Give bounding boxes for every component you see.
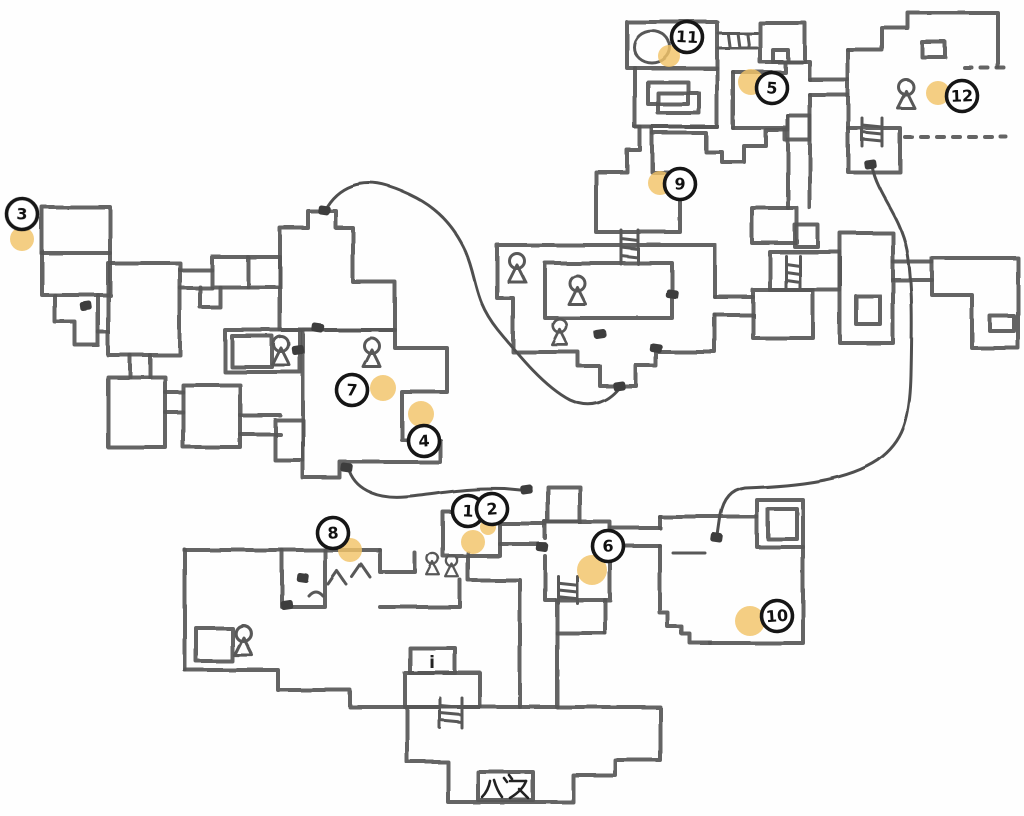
map-wall — [280, 211, 395, 330]
svg-text:2: 2 — [486, 499, 498, 519]
door-marker — [317, 205, 330, 216]
door-marker — [612, 381, 625, 392]
map-wall — [660, 546, 710, 643]
chevron-mark — [309, 592, 323, 596]
person-icon — [509, 254, 526, 283]
map-wall — [770, 252, 840, 290]
map-wall — [232, 336, 272, 367]
person-icon — [569, 276, 586, 305]
ladder-icon — [718, 33, 757, 48]
map-wall — [55, 295, 98, 345]
door-marker — [593, 329, 606, 340]
map-marker-4: 4 — [408, 425, 441, 458]
info-label: i — [429, 653, 435, 673]
svg-text:1: 1 — [462, 501, 474, 521]
door-marker — [311, 323, 324, 334]
door-marker — [296, 573, 309, 584]
svg-text:4: 4 — [418, 431, 430, 451]
map-wall — [990, 316, 1014, 331]
map-wall — [768, 509, 797, 539]
svg-text:7: 7 — [346, 380, 358, 400]
svg-text:5: 5 — [766, 78, 778, 98]
map-marker-6: 6 — [592, 530, 624, 562]
door-marker — [520, 485, 533, 496]
door-marker — [649, 343, 662, 354]
map-wall — [652, 116, 788, 162]
person-icon — [552, 319, 567, 345]
map-marker-9: 9 — [664, 168, 696, 200]
person-icon — [898, 80, 915, 109]
map-marker-8: 8 — [317, 517, 350, 550]
map-wall — [183, 385, 240, 447]
ladder-icon — [862, 118, 882, 146]
map-marker-10: 10 — [760, 599, 793, 632]
map-wall — [760, 23, 805, 62]
map-marker-12: 12 — [946, 80, 978, 112]
door-marker — [291, 345, 304, 356]
svg-text:3: 3 — [16, 204, 28, 223]
route-lines — [325, 168, 912, 536]
svg-text:9: 9 — [674, 174, 686, 193]
door-marker — [863, 159, 876, 170]
map-wall — [856, 296, 880, 324]
map-wall — [753, 290, 813, 338]
map-wall — [275, 420, 303, 460]
person-icon — [364, 339, 381, 368]
ladder-icon — [786, 256, 800, 288]
map-marker-11: 11 — [671, 21, 704, 54]
door-marker — [79, 301, 92, 312]
map-marker-2: 2 — [475, 492, 508, 525]
map-wall — [380, 550, 415, 572]
person-icon — [234, 625, 252, 655]
svg-text:12: 12 — [951, 86, 974, 106]
door-marker — [340, 463, 353, 474]
map-marker-3: 3 — [6, 198, 38, 230]
ladder-icon — [440, 698, 462, 728]
chevron-mark — [328, 571, 346, 584]
map-walls — [42, 13, 1018, 802]
map-wall — [752, 208, 797, 243]
bus-label — [482, 775, 528, 798]
map-wall — [196, 628, 232, 661]
item-dot — [461, 530, 485, 554]
item-dot — [370, 375, 396, 401]
map-wall — [840, 233, 893, 343]
map-wall — [932, 258, 1018, 348]
map-wall — [185, 670, 407, 707]
map-marker-7: 7 — [336, 374, 369, 407]
map-wall — [405, 673, 480, 707]
map-wall — [468, 553, 520, 707]
map-canvas: 123456789101112 i — [0, 0, 1024, 816]
person-icon — [273, 337, 290, 366]
map-marker-5: 5 — [755, 71, 788, 104]
svg-text:11: 11 — [675, 27, 698, 47]
map-wall — [922, 42, 945, 57]
door-marker — [535, 542, 548, 553]
map-wall — [108, 377, 165, 447]
svg-text:6: 6 — [602, 536, 614, 555]
svg-text:8: 8 — [327, 523, 339, 543]
map-wall — [108, 263, 180, 355]
person-icon — [427, 553, 440, 574]
map-markers: 123456789101112 — [6, 21, 978, 633]
person-icon — [446, 555, 459, 576]
door-marker — [710, 533, 723, 544]
hand-drawn-game-map: 123456789101112 i — [0, 0, 1024, 816]
chevron-mark — [352, 564, 370, 577]
door-marker — [665, 289, 678, 300]
svg-text:10: 10 — [765, 606, 789, 627]
map-wall — [548, 487, 580, 522]
item-dot — [408, 401, 434, 427]
door-marker — [280, 600, 293, 611]
map-wall — [380, 580, 460, 607]
map-wall — [545, 263, 672, 318]
